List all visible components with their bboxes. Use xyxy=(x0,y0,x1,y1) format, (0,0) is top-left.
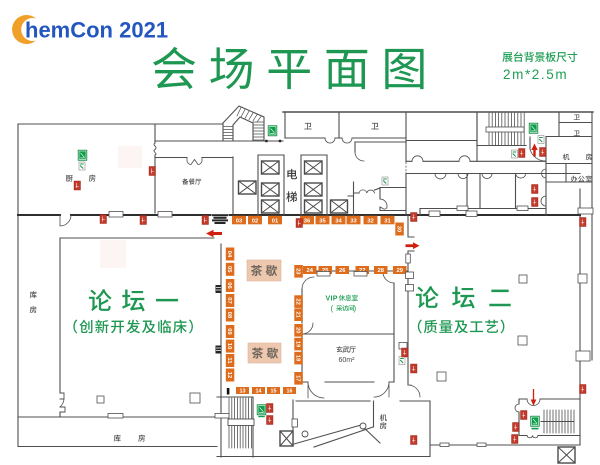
svg-text:17: 17 xyxy=(294,375,300,381)
svg-text:08: 08 xyxy=(226,312,232,319)
svg-text:28: 28 xyxy=(378,268,385,274)
svg-text:11: 11 xyxy=(226,357,232,364)
svg-text:24: 24 xyxy=(307,268,314,274)
svg-text:26: 26 xyxy=(339,268,346,274)
svg-text:35: 35 xyxy=(319,218,326,224)
svg-text:31: 31 xyxy=(384,218,391,224)
svg-text:06: 06 xyxy=(226,282,232,289)
svg-text:13: 13 xyxy=(240,389,246,395)
svg-text:hemCon 2021: hemCon 2021 xyxy=(25,18,168,43)
svg-text:23: 23 xyxy=(294,268,300,275)
svg-text:2m*2.5m: 2m*2.5m xyxy=(503,67,568,82)
svg-text:60m²: 60m² xyxy=(339,357,356,364)
svg-text:07: 07 xyxy=(226,297,232,303)
svg-text:34: 34 xyxy=(335,218,342,224)
svg-text:04: 04 xyxy=(226,251,232,258)
svg-text:18: 18 xyxy=(294,355,300,362)
svg-text:30: 30 xyxy=(395,226,401,232)
svg-text:03: 03 xyxy=(236,218,243,224)
svg-text:02: 02 xyxy=(252,218,258,224)
svg-text:10: 10 xyxy=(226,343,232,349)
svg-text:VIP: VIP xyxy=(326,296,338,303)
svg-text:22: 22 xyxy=(294,298,300,304)
svg-text:19: 19 xyxy=(294,341,300,348)
svg-text:09: 09 xyxy=(226,328,232,335)
svg-text:16: 16 xyxy=(287,389,293,395)
svg-text:12: 12 xyxy=(226,372,232,378)
svg-text:32: 32 xyxy=(367,218,373,224)
svg-text:15: 15 xyxy=(271,389,277,395)
svg-text:36: 36 xyxy=(304,218,311,224)
svg-text:20: 20 xyxy=(294,327,300,333)
svg-text:14: 14 xyxy=(256,389,262,395)
svg-text:33: 33 xyxy=(350,218,357,224)
svg-text:(: ( xyxy=(331,304,334,313)
svg-text:21: 21 xyxy=(294,311,300,318)
svg-text:01: 01 xyxy=(272,218,279,224)
svg-text:05: 05 xyxy=(226,266,232,273)
svg-text:29: 29 xyxy=(397,268,404,274)
